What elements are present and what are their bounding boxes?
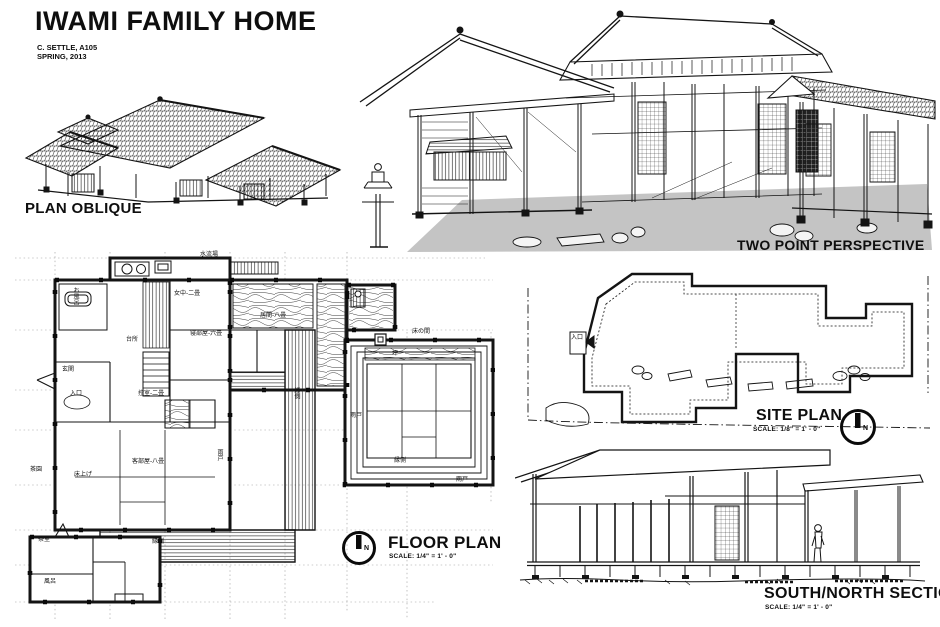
floor-plan-scale: SCALE: 1/4" = 1' - 0" <box>389 553 456 560</box>
room-label: 台所 <box>126 337 138 343</box>
site-plan-north-arrow: N <box>838 407 878 447</box>
room-label: 雨戸 <box>350 413 362 419</box>
section-footings <box>532 566 910 579</box>
tea-room-block <box>30 537 160 602</box>
north-letter: N <box>364 545 369 552</box>
room-label: 女中-二畳 <box>174 291 200 297</box>
room-label: 客部屋-八畳 <box>132 459 164 465</box>
plan-oblique-label: PLAN OBLIQUE <box>25 200 142 217</box>
drawing-sheet: IWAMI FAMILY HOME C. SETTLE, A105 SPRING… <box>0 0 940 627</box>
room-label: 縁側 <box>152 539 164 545</box>
room-label: 水流場 <box>200 252 218 258</box>
floor-plan-north-arrow: N <box>340 529 378 567</box>
floor-plan-label: FLOOR PLAN <box>388 533 502 553</box>
author-line: C. SETTLE, A105 <box>37 43 97 52</box>
section-roof <box>515 450 923 491</box>
two-point-perspective-drawing <box>352 2 938 258</box>
room-label: 入口 <box>70 391 82 397</box>
site-entry-label: 入口 <box>571 335 583 341</box>
floor-plan: 水流場 女中-二畳 お風呂 台所 居間-八畳 寝部屋-六畳 床の間 坪 玄関 入… <box>15 252 495 624</box>
section-label: SOUTH/NORTH SECTION <box>764 585 940 603</box>
room-label: 縁側 <box>394 458 406 464</box>
room-label: 縁側 <box>293 387 299 399</box>
room-label: 茶室 <box>38 537 50 543</box>
site-plan-scale: SCALE: 1/8" = 1' - 0" <box>753 426 820 433</box>
room-label: 寝部屋-六畳 <box>190 331 222 337</box>
room-label: 雨戸 <box>216 449 222 461</box>
date-line: SPRING, 2013 <box>37 52 87 61</box>
two-point-perspective-label: TWO POINT PERSPECTIVE <box>737 237 925 253</box>
stone-lantern <box>362 164 394 247</box>
room-label: 居間-八畳 <box>260 313 286 319</box>
room-label: 玄関 <box>62 367 74 373</box>
room-label: 床上げ <box>74 472 92 478</box>
site-plan-label: SITE PLAN <box>756 407 842 425</box>
sheet-title: IWAMI FAMILY HOME <box>35 6 317 37</box>
room-label: お風呂 <box>72 287 78 305</box>
north-letter: N <box>863 425 868 432</box>
perspective-main-building <box>560 11 832 202</box>
plan-oblique-drawing <box>8 86 343 208</box>
room-label: 風呂 <box>44 579 56 585</box>
perspective-left-building <box>360 27 614 218</box>
room-label: 茶園 <box>30 467 42 473</box>
room-label: 床の間 <box>412 329 430 335</box>
roof-outline <box>584 274 912 422</box>
room-label: 控室-二畳 <box>138 391 164 397</box>
section-scale: SCALE: 1/4" = 1' - 0" <box>765 604 832 611</box>
bath-block-interior <box>349 287 393 345</box>
room-label: 坪 <box>392 351 398 357</box>
section-drawing <box>515 448 937 598</box>
floor-plan-drawing <box>15 252 495 624</box>
section-human-figure <box>812 525 824 562</box>
room-label: 雨戸 <box>456 477 468 483</box>
